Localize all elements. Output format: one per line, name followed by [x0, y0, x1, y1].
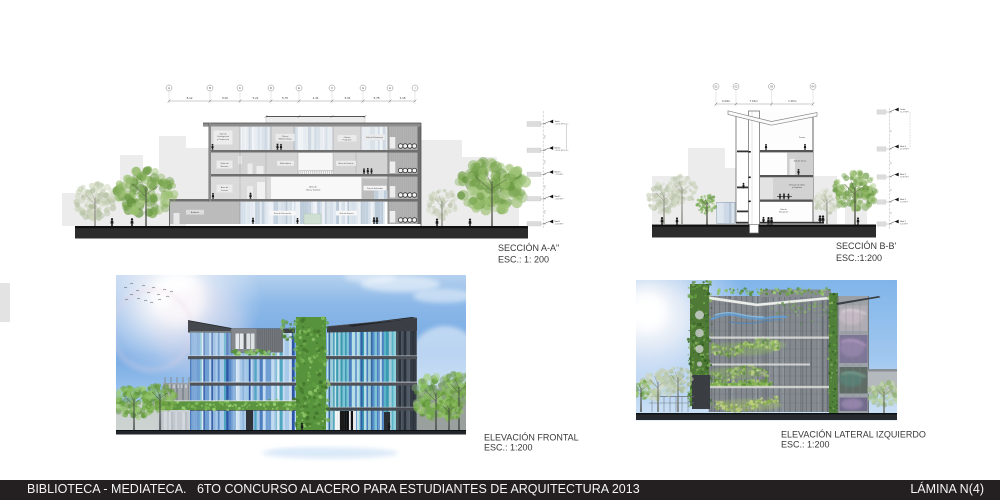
svg-text:Área de: Área de	[221, 186, 229, 189]
svg-text:7.46m: 7.46m	[788, 99, 797, 103]
svg-text:ESC.: 1:200: ESC.: 1:200	[781, 439, 830, 449]
svg-text:11.88 NPT: 11.88 NPT	[900, 177, 910, 179]
svg-text:Nivel 1: Nivel 1	[555, 221, 561, 223]
svg-text:Nivel 2: Nivel 2	[555, 196, 561, 198]
svg-text:Nivel 2: Nivel 2	[900, 199, 906, 201]
svg-text:y Depósitos: y Depósitos	[792, 186, 802, 189]
svg-text:ESC.: 1:200: ESC.: 1:200	[484, 443, 533, 453]
svg-text:02: 02	[734, 85, 738, 89]
svg-text:Área de: Área de	[309, 186, 317, 189]
svg-text:Sala de Tareas: Sala de Tareas	[794, 160, 807, 163]
svg-text:5.21: 5.21	[253, 96, 259, 100]
svg-text:+14.56 NPT: +14.56 NPT	[555, 124, 566, 126]
svg-text:Nivel 4: Nivel 4	[900, 146, 906, 148]
svg-text:Bocetos: Bocetos	[221, 165, 229, 168]
svg-text:Oficina: Oficina	[282, 136, 289, 138]
svg-text:y Producción: y Producción	[217, 138, 230, 141]
svg-text:5.04: 5.04	[345, 96, 351, 100]
svg-text:ELEVACIÓN LATERAL IZQUIERDO: ELEVACIÓN LATERAL IZQUIERDO	[781, 429, 926, 439]
svg-text:3.9: 3.9	[891, 162, 893, 165]
svg-text:6.02: 6.02	[222, 96, 228, 100]
svg-text:4.44: 4.44	[313, 96, 319, 100]
svg-text:Profesión: Profesión	[343, 138, 353, 141]
svg-text:ESC.: 1: 200: ESC.: 1: 200	[498, 255, 549, 265]
svg-text:F: F	[331, 86, 333, 90]
svg-text:ELEVACIÓN FRONTAL: ELEVACIÓN FRONTAL	[484, 433, 579, 443]
svg-text:03: 03	[770, 85, 774, 89]
svg-text:01: 01	[714, 85, 718, 89]
svg-text:H: H	[389, 86, 391, 90]
svg-text:15.84 NPT: 15.84 NPT	[900, 149, 910, 151]
svg-text:SECCIÓN B-B': SECCIÓN B-B'	[836, 241, 897, 251]
svg-text:5.76: 5.76	[282, 96, 288, 100]
svg-text:3.18: 3.18	[400, 96, 406, 100]
svg-text:Catalogación: Catalogación	[217, 135, 230, 138]
svg-text:Terraza: Terraza	[799, 136, 806, 139]
svg-text:Nivel 3: Nivel 3	[555, 171, 561, 173]
svg-text:+10.92 NPT: +10.92 NPT	[555, 150, 566, 152]
svg-text:7.15m: 7.15m	[750, 99, 759, 103]
svg-text:0.00 NPT: 0.00 NPT	[900, 224, 909, 226]
svg-text:Sala de: Sala de	[780, 209, 786, 211]
svg-text:21.47 NPT: 21.47 NPT	[900, 112, 910, 114]
svg-text:4.23m: 4.23m	[722, 99, 731, 103]
svg-text:E: E	[298, 86, 300, 90]
svg-text:5.6: 5.6	[891, 130, 893, 133]
svg-text:Área de Historia: Área de Historia	[339, 162, 355, 165]
svg-text:8.12: 8.12	[187, 96, 193, 100]
svg-text:Sala de Recepción: Sala de Recepción	[274, 213, 292, 215]
svg-text:5.94 NPT: 5.94 NPT	[900, 202, 909, 204]
svg-text:Sala de Reuniones: Sala de Reuniones	[366, 137, 383, 139]
svg-text:Techo: Techo	[555, 121, 560, 123]
svg-text:B: B	[209, 86, 211, 90]
svg-text:+7.28 NPT: +7.28 NPT	[555, 174, 565, 176]
svg-text:+0.00 NPT: +0.00 NPT	[555, 224, 565, 226]
svg-text:SECCIÓN A-A": SECCIÓN A-A"	[498, 243, 559, 253]
svg-text:Sala de Espera: Sala de Espera	[339, 212, 354, 215]
svg-text:5.9: 5.9	[891, 189, 893, 192]
svg-text:Nivel 3: Nivel 3	[900, 174, 906, 176]
svg-text:5.9: 5.9	[891, 212, 893, 215]
svg-text:+3.64 NPT: +3.64 NPT	[555, 199, 565, 201]
svg-text:Sala de: Sala de	[219, 134, 227, 136]
svg-text:A: A	[168, 86, 170, 90]
svg-text:Gimnasio de Libros: Gimnasio de Libros	[789, 184, 805, 187]
svg-text:3.64: 3.64	[544, 160, 546, 164]
svg-text:Nivel 4: Nivel 4	[555, 147, 561, 149]
svg-text:Recepción: Recepción	[779, 212, 788, 214]
svg-text:Nivel 1: Nivel 1	[900, 221, 906, 223]
svg-text:LÁMINA N(4): LÁMINA N(4)	[910, 481, 984, 496]
svg-text:04: 04	[811, 85, 815, 89]
svg-text:Techo: Techo	[900, 109, 905, 111]
svg-text:3.64: 3.64	[544, 185, 546, 189]
svg-text:niños y material: niños y material	[306, 188, 321, 191]
svg-text:Bellas Artes: Bellas Artes	[280, 162, 291, 165]
svg-text:Bibliotecóloga: Bibliotecóloga	[279, 138, 293, 141]
svg-text:ESC.:1:200: ESC.:1:200	[836, 253, 882, 263]
svg-text:3.64: 3.64	[544, 135, 546, 139]
svg-text:5.78: 5.78	[374, 96, 380, 100]
svg-text:Salón de: Salón de	[220, 163, 229, 165]
svg-text:3.64: 3.64	[544, 210, 546, 214]
svg-text:BIBLIOTECA - MEDIATECA. 6TO: BIBLIOTECA - MEDIATECA. 6TO CONCURSO ALA…	[27, 482, 640, 496]
svg-text:Lectura: Lectura	[221, 189, 229, 192]
svg-text:Sala de Solicitudes: Sala de Solicitudes	[367, 187, 383, 190]
svg-text:Auditorio: Auditorio	[191, 211, 200, 214]
